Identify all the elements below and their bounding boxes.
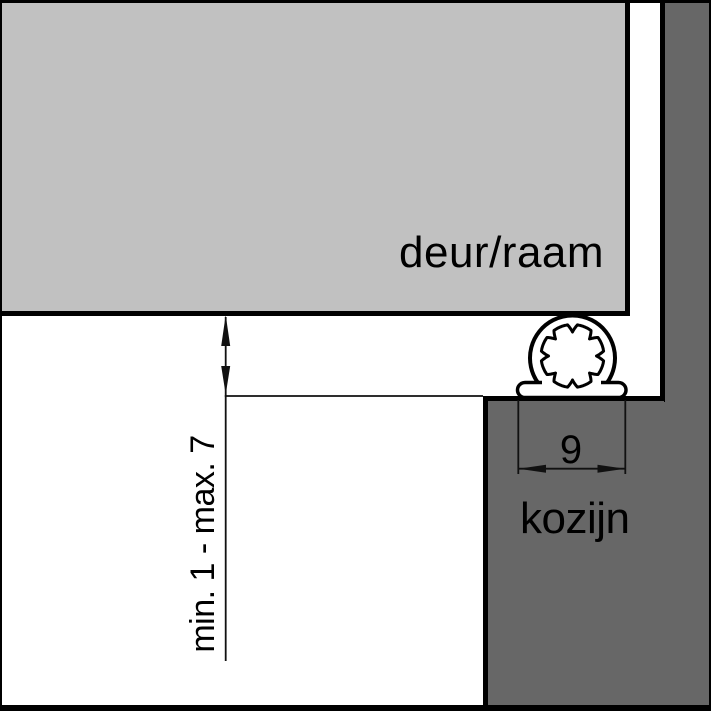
border-top [0,0,711,3]
seal-outer-tube [530,315,615,396]
frame-divider-line [660,0,665,402]
border-left [0,0,2,711]
door-window-label: deur/raam [399,231,604,275]
profile-width-label: 9 [551,430,591,470]
seal-profile [518,315,627,397]
frame-label: kozijn [520,497,630,541]
frame-column-panel [664,0,711,711]
gap-dimension-label: min. 1 - max. 7 [186,435,220,652]
weatherstrip-installation-diagram: deur/raam kozijn 9 min. 1 - max. 7 [0,0,711,711]
seal-inner-notched-ring [541,325,603,387]
vertical-dimension-arrow [221,315,483,661]
border-bottom [0,705,711,711]
